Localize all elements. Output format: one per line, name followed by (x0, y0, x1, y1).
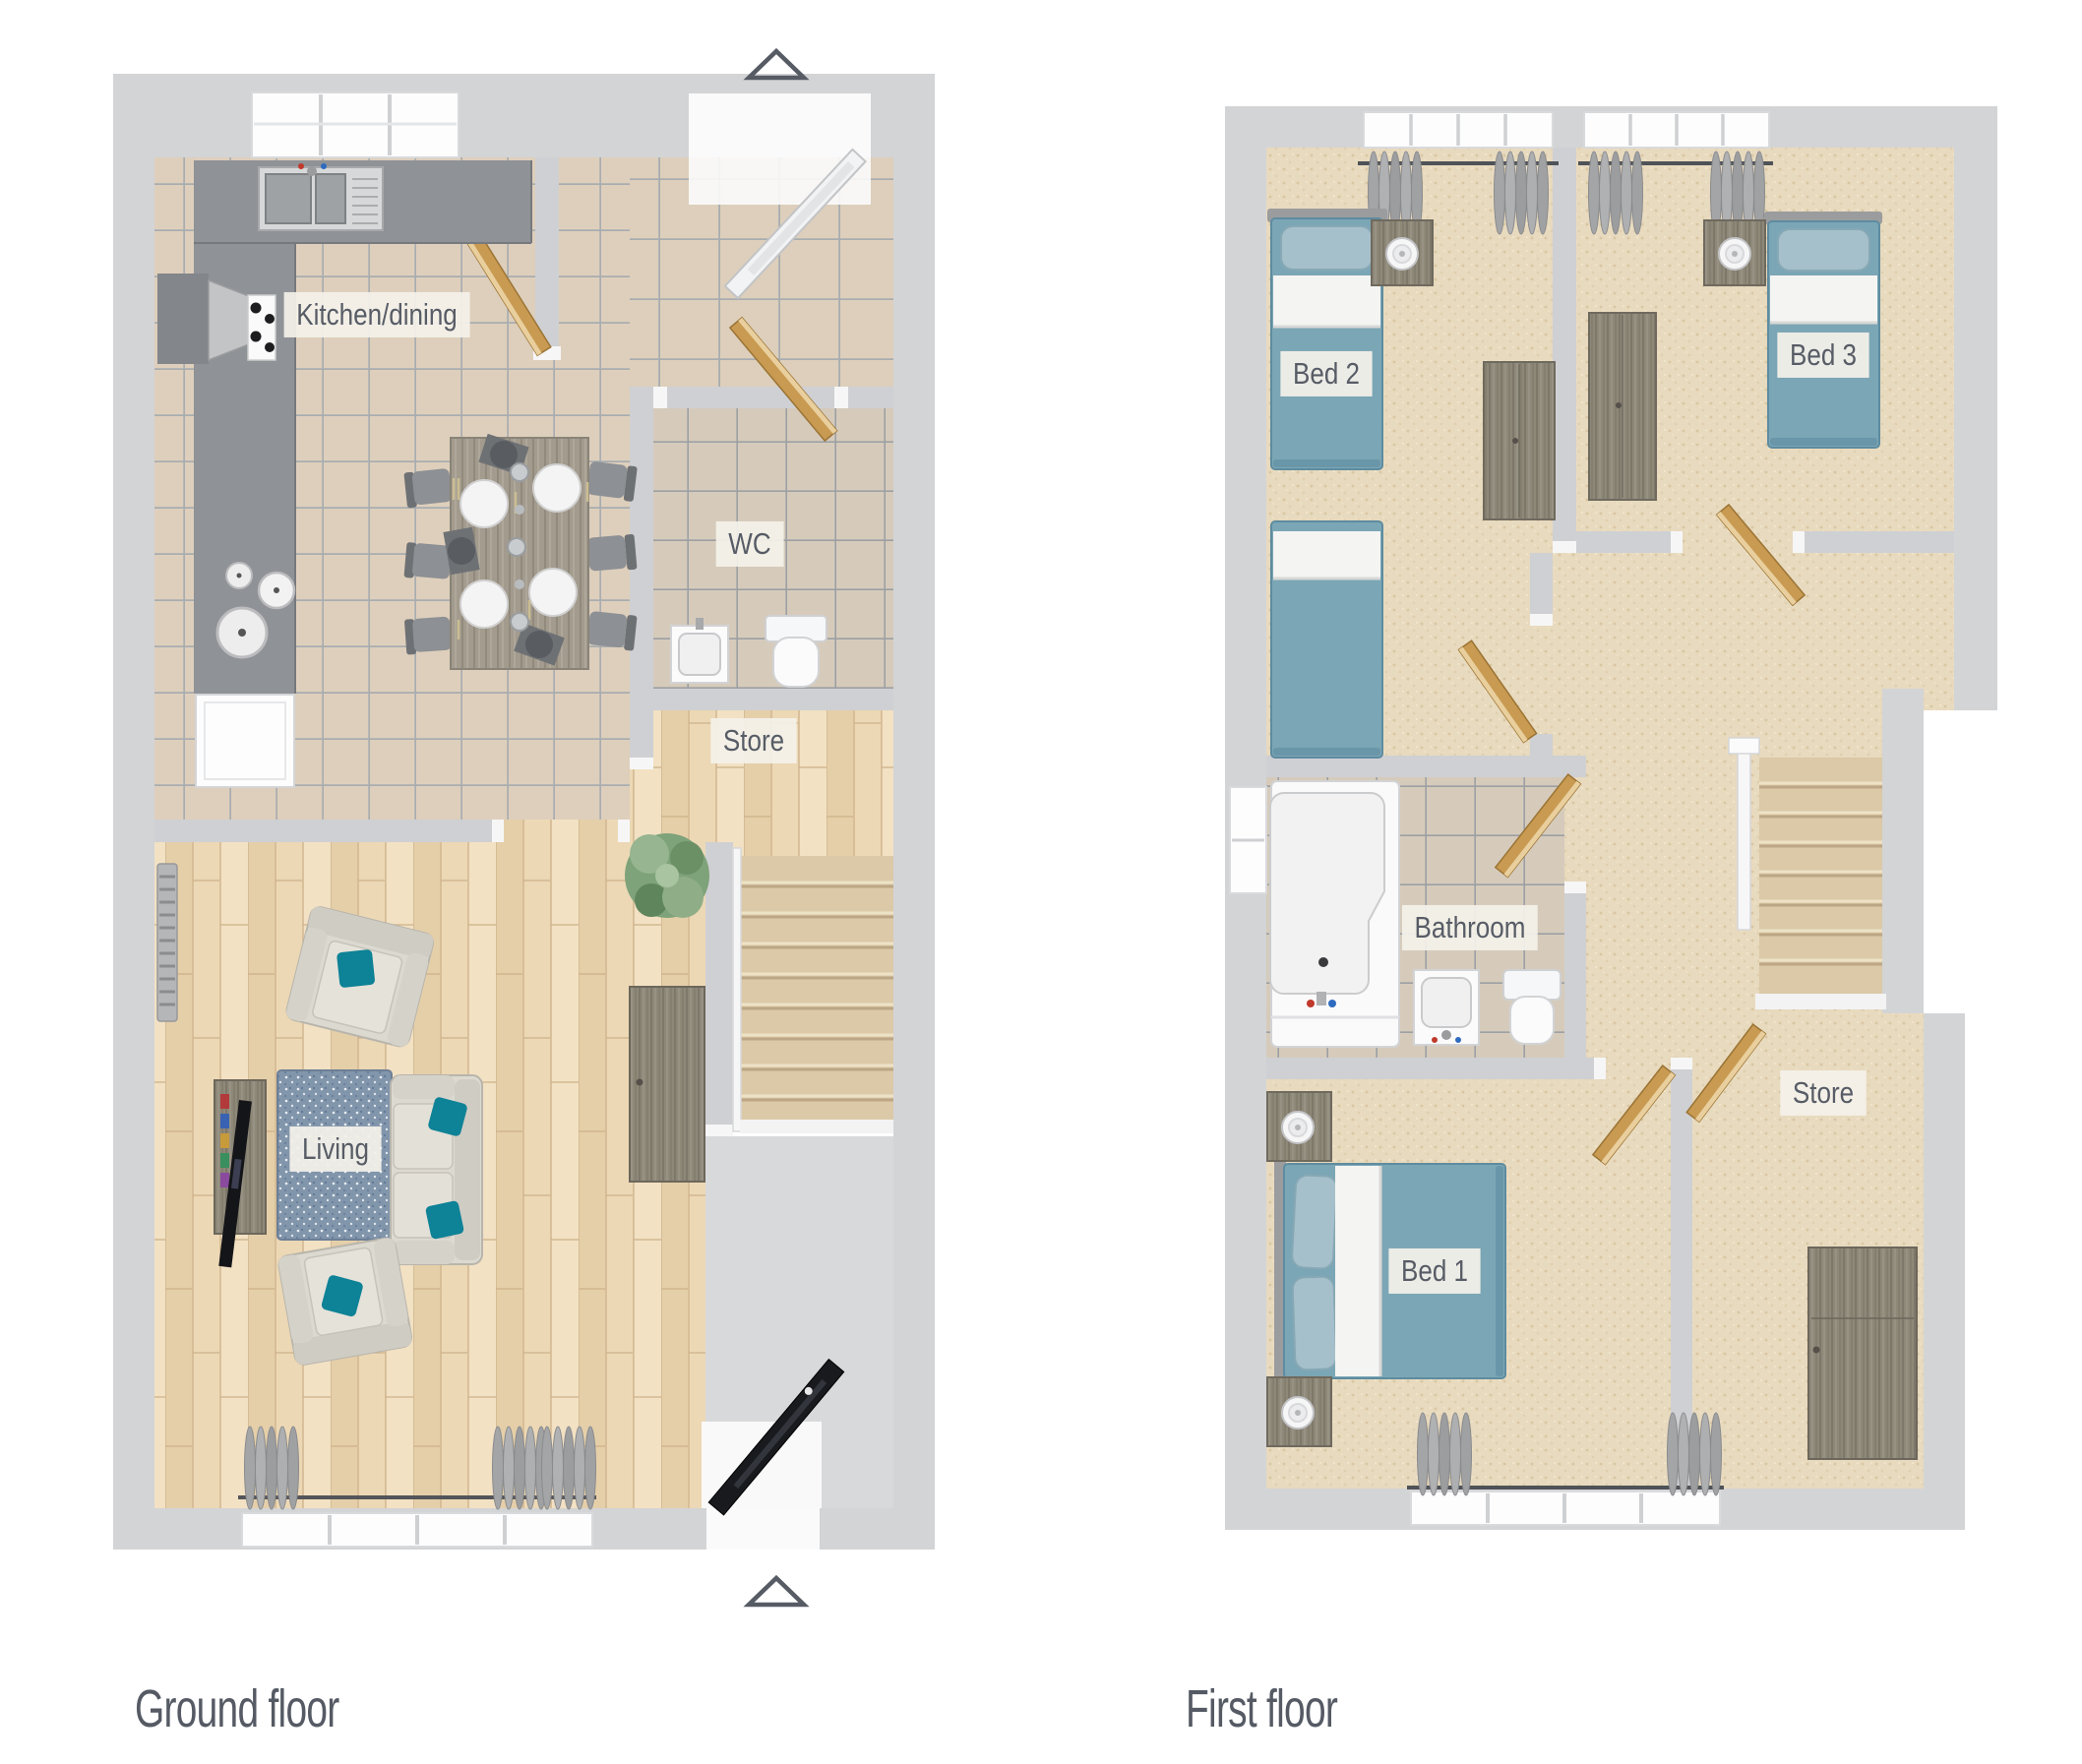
single-bed (1271, 521, 1382, 758)
entrance-arrow-icon (749, 1578, 804, 1605)
dining-chair (404, 617, 452, 655)
bedside-table (1267, 1377, 1331, 1446)
wall-right-lower (1924, 1013, 1965, 1489)
wall-bathroom-top (1266, 756, 1586, 777)
sofa (391, 1075, 482, 1264)
wc-basin (671, 618, 728, 683)
wall-bed2-bed3 (1553, 148, 1576, 553)
staircase-ground (733, 848, 893, 1133)
radiator (157, 864, 177, 1021)
kitchen-sink (259, 163, 383, 230)
bedside-table (1267, 1092, 1331, 1161)
notch (1924, 710, 2012, 1013)
door-jamb (653, 387, 667, 408)
door-jamb (618, 820, 630, 842)
curtains (493, 1427, 547, 1509)
wall-right (893, 74, 935, 1550)
wardrobe (1589, 313, 1656, 500)
store-cabinet (1808, 1247, 1917, 1459)
wall-kitchen-living (154, 820, 504, 842)
wall-right-mid (1882, 689, 1924, 1013)
bath (1270, 781, 1399, 1047)
bed-2 (1267, 209, 1387, 469)
newel-post (1729, 738, 1759, 754)
bed-3 (1764, 212, 1882, 448)
wc-toilet (765, 616, 827, 687)
wardrobe (1484, 362, 1555, 519)
room-label-kitchen-dining: Kitchen/dining (284, 292, 470, 337)
bathroom-window (1230, 787, 1266, 893)
door-jamb (1564, 882, 1586, 893)
door-jamb (1671, 531, 1683, 553)
armchair (277, 1237, 413, 1366)
curtains (245, 1427, 299, 1509)
door-jamb (1793, 531, 1805, 553)
bathroom-toilet (1503, 970, 1561, 1044)
dining-chair (587, 534, 638, 574)
wall-living-stair (705, 842, 733, 1136)
bathroom-basin (1414, 970, 1479, 1045)
wall-left (113, 74, 154, 1550)
door-jamb (1671, 1058, 1692, 1069)
first-floor-caption: First floor (1186, 1678, 1337, 1739)
ground-floor-plan (113, 51, 935, 1605)
stair-rim (1755, 994, 1886, 1009)
curtains (542, 1427, 596, 1509)
room-label-bed1: Bed 1 (1388, 1248, 1480, 1294)
plant (625, 833, 709, 918)
wall-wc-bottom (653, 689, 893, 710)
kitchen-window (252, 92, 459, 157)
first-floor-plan (1225, 106, 2012, 1530)
wall-right-upper (1954, 106, 1997, 710)
room-label-bed3: Bed 3 (1777, 333, 1868, 378)
room-label-bathroom: Bathroom (1402, 905, 1538, 950)
wall-bathroom-right (1564, 893, 1586, 1058)
sideboard (630, 987, 704, 1182)
stair-banister (733, 848, 741, 1131)
stair-banister (1738, 748, 1750, 930)
room-label-store-ground: Store (710, 718, 796, 763)
door-jamb (1530, 614, 1553, 626)
room-label-living: Living (289, 1126, 381, 1172)
bedside-table (1372, 220, 1433, 285)
wall-bed3-bottom (1576, 531, 1671, 553)
room-label-store-first: Store (1780, 1070, 1866, 1116)
wall-wc-top (630, 387, 893, 408)
appliance (196, 695, 294, 787)
wall-cap (1553, 541, 1576, 553)
entrance-arrow-icon (749, 51, 804, 78)
door-jamb (834, 387, 848, 408)
wall-bed3-bottom (1805, 531, 1954, 553)
floorplan-canvas: Kitchen/dining WC Store Living Bed 2 Bed… (0, 0, 2082, 1764)
ground-floor-caption: Ground floor (135, 1678, 338, 1739)
dining-chair (403, 468, 453, 509)
wall-kitchen-hall (535, 157, 559, 349)
room-label-bed2: Bed 2 (1280, 351, 1372, 396)
stair-rim (740, 1120, 893, 1133)
wall-cap (630, 758, 653, 769)
passage-floor (504, 820, 630, 842)
wall-cap (705, 1125, 733, 1136)
dining-chair (403, 542, 452, 581)
door-jamb (1594, 1058, 1606, 1079)
floorplan-graphics (0, 0, 2082, 1764)
bedside-table (1704, 220, 1765, 285)
room-label-wc: WC (716, 521, 784, 567)
door-jamb (492, 820, 504, 842)
door-threshold (689, 93, 871, 157)
wall-bed1-top (1266, 1058, 1606, 1079)
